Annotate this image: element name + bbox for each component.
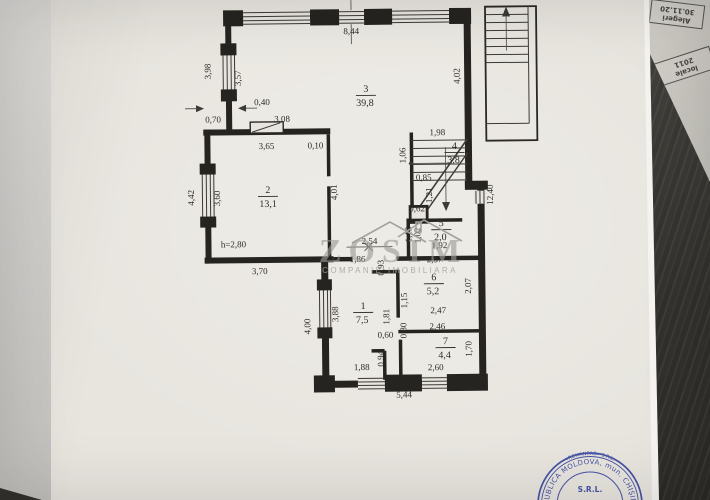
external-staircase: [485, 6, 537, 141]
dimension-label: 0,40: [254, 97, 270, 107]
dimension-label: 3,70: [252, 266, 268, 276]
svg-text:3,8: 3,8: [447, 155, 460, 166]
dimension-label: 0,80: [398, 322, 408, 338]
svg-text:7,5: 7,5: [356, 315, 369, 326]
dimension-label: 3,57: [233, 70, 243, 86]
dimension-label: 0,94: [376, 350, 386, 366]
dimension-label: 2,07: [463, 277, 473, 293]
dimension-label: 2,46: [429, 321, 445, 331]
svg-text:7: 7: [443, 336, 448, 347]
svg-text:4: 4: [452, 141, 457, 152]
floor-plan-svg: 8,44 3,98 3,57 0,40 0,70 3,08 3,65 0,10 …: [0, 0, 710, 500]
watermark-brand: ZOSIM: [319, 233, 467, 270]
dimension-label: 4,02: [452, 68, 462, 84]
photo-of-floor-plan: Alegeri 30.11.20 locale 2011: [0, 0, 710, 500]
dimension-label: 0,85: [416, 172, 432, 182]
dimension-label: 2,60: [428, 362, 444, 372]
dimension-label: 2,47: [430, 305, 446, 315]
dimension-label: 0,60: [377, 330, 393, 340]
dimension-label: 1,81: [381, 309, 391, 325]
svg-text:1: 1: [361, 301, 366, 312]
svg-text:39,8: 39,8: [356, 98, 374, 109]
stair-up-arrow: [502, 6, 510, 16]
dimension-label: 3,08: [274, 114, 290, 124]
dimension-label: 1,15: [399, 292, 409, 308]
dimension-label: 1,98: [429, 127, 445, 137]
dimension-label: 4,42: [186, 190, 196, 206]
svg-text:13,1: 13,1: [259, 199, 277, 210]
dimension-label: 0,62: [409, 203, 425, 213]
dimension-label: 8,44: [343, 26, 359, 36]
dimension-label: 0,10: [307, 140, 323, 150]
floor-plan-drawing: 8,44 3,98 3,57 0,40 0,70 3,08 3,65 0,10 …: [184, 0, 540, 402]
dimension-label: 3,88: [330, 306, 340, 322]
dimension-label: 0,70: [205, 114, 221, 124]
dimension-label: 5,44: [396, 389, 412, 399]
dimension-label: 1,06: [397, 147, 407, 163]
dimension-label: 4,01: [329, 184, 339, 200]
svg-text:2: 2: [265, 185, 270, 196]
svg-text:3: 3: [363, 84, 368, 95]
ceiling-height-note: h=2,80: [221, 239, 247, 249]
svg-text:5,2: 5,2: [427, 286, 440, 297]
svg-text:4,4: 4,4: [438, 350, 451, 361]
dimension-label: 1,70: [463, 340, 473, 356]
dimension-label: 4,00: [302, 318, 312, 334]
dimension-label: 1,21: [424, 187, 434, 203]
svg-text:5: 5: [439, 218, 444, 229]
stamp-center-text: S.R.L.: [578, 485, 603, 494]
dimension-label: 3,65: [259, 141, 275, 151]
dimension-label: 1,88: [354, 362, 370, 372]
dimension-label: 3,98: [203, 63, 213, 79]
dimension-label: 3,60: [212, 190, 222, 206]
company-stamp: «ROMANCAD» S.R.L. REPUBLICA MOLDOVA, mun…: [538, 451, 642, 500]
dimension-label: 12,40: [485, 184, 495, 205]
watermark-tagline: COMPANIE IMOBILIARA: [322, 266, 458, 275]
